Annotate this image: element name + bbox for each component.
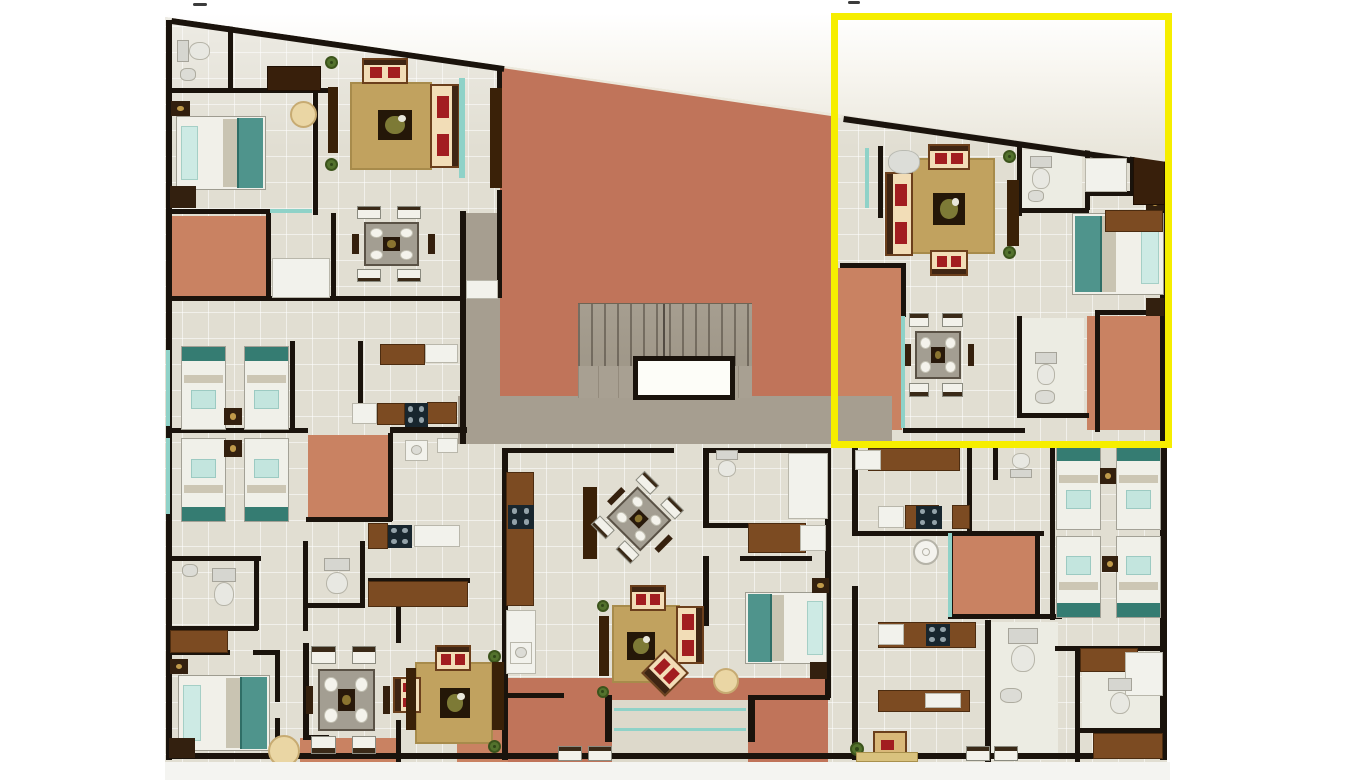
centerpiece bbox=[634, 514, 644, 524]
dining-chair bbox=[311, 646, 336, 664]
plate bbox=[324, 677, 338, 692]
burner bbox=[929, 637, 934, 642]
nightstand bbox=[224, 408, 242, 425]
wall-segment bbox=[303, 603, 365, 608]
sofa-cushion bbox=[636, 594, 646, 605]
kitchen-counter bbox=[170, 630, 228, 653]
toilet-bowl bbox=[1012, 453, 1031, 469]
side-table bbox=[856, 752, 918, 762]
potted-plant bbox=[597, 686, 609, 698]
bathroom-sink bbox=[180, 68, 196, 81]
terrace-left-apartment bbox=[170, 216, 266, 298]
twin-bed bbox=[181, 346, 226, 430]
wall-segment bbox=[985, 620, 991, 762]
potted-plant bbox=[325, 56, 338, 69]
bed-headboard bbox=[245, 507, 288, 521]
chair-back bbox=[358, 278, 380, 281]
burner bbox=[391, 528, 396, 533]
burner bbox=[524, 508, 530, 513]
double-bed bbox=[745, 592, 827, 664]
toilet-tank bbox=[324, 558, 350, 571]
burner bbox=[932, 509, 938, 514]
wall-segment bbox=[390, 427, 467, 433]
stone-corridor-band bbox=[458, 396, 892, 444]
toilet-bowl bbox=[1011, 645, 1035, 673]
mid-left-patio bbox=[308, 435, 388, 519]
wall-segment bbox=[460, 211, 466, 444]
kitchen-counter bbox=[506, 472, 534, 606]
coffee-table bbox=[440, 688, 470, 718]
plate bbox=[633, 528, 649, 544]
plant-center bbox=[493, 655, 497, 659]
kitchen-sink bbox=[405, 440, 428, 461]
toilet-bowl bbox=[214, 582, 234, 606]
twin-bed bbox=[1056, 536, 1101, 618]
chair-back bbox=[398, 207, 420, 210]
toilet bbox=[1106, 678, 1134, 716]
plate bbox=[370, 228, 383, 238]
burner bbox=[419, 417, 424, 422]
chair-back bbox=[967, 747, 989, 751]
chair-back bbox=[353, 748, 376, 753]
toilet-tank bbox=[212, 568, 237, 582]
plant-center bbox=[601, 604, 604, 607]
bed-pillow bbox=[807, 601, 823, 654]
white-appliance bbox=[925, 693, 961, 708]
media-console bbox=[328, 87, 338, 153]
kitchen-counter bbox=[368, 581, 468, 607]
sofa-cushion bbox=[388, 67, 401, 78]
white-appliance bbox=[466, 280, 498, 299]
glass-door bbox=[614, 708, 746, 711]
burner bbox=[920, 509, 926, 514]
knob bbox=[177, 106, 184, 111]
glass-door bbox=[459, 78, 465, 178]
glass-door bbox=[270, 209, 312, 213]
nightstand bbox=[1102, 556, 1118, 572]
bed-pillow bbox=[1066, 490, 1091, 510]
bed-fold bbox=[1119, 582, 1159, 590]
wood-block bbox=[169, 738, 195, 758]
potted-plant bbox=[597, 600, 609, 612]
dining-chair bbox=[352, 646, 377, 664]
dining-set bbox=[306, 646, 394, 754]
toilet bbox=[1008, 452, 1034, 478]
sofa-back bbox=[395, 679, 401, 711]
potted-plant bbox=[488, 740, 501, 753]
white-appliance bbox=[855, 450, 881, 470]
sofa-back bbox=[632, 587, 664, 592]
plate bbox=[400, 250, 413, 260]
sofa-cushion bbox=[370, 67, 383, 78]
sink-bowl bbox=[515, 647, 526, 658]
wall-segment bbox=[266, 213, 271, 301]
toilet bbox=[322, 558, 352, 596]
chair-back bbox=[358, 207, 380, 210]
burner bbox=[524, 519, 530, 524]
dining-bracket bbox=[352, 234, 359, 254]
dining-chair bbox=[397, 206, 421, 219]
toilet-tank bbox=[1008, 628, 1038, 644]
kitchen-counter bbox=[748, 523, 806, 553]
bed-pillow bbox=[181, 126, 199, 181]
toilet-tank bbox=[716, 450, 739, 460]
coffee-cup bbox=[398, 115, 406, 122]
coffee-cup bbox=[457, 693, 464, 700]
wall-segment bbox=[852, 586, 858, 690]
round-table bbox=[913, 539, 939, 565]
sofa-cushion bbox=[682, 640, 694, 655]
plate bbox=[614, 510, 630, 526]
wall-segment bbox=[275, 650, 280, 702]
floor-plan-screenshot bbox=[0, 0, 1350, 780]
plate bbox=[370, 250, 383, 260]
toilet-tank bbox=[1010, 469, 1033, 478]
toilet bbox=[1006, 628, 1040, 674]
nightstand bbox=[171, 101, 190, 116]
nightstand bbox=[170, 659, 188, 674]
white-appliance bbox=[414, 525, 460, 547]
bed-fold bbox=[1059, 582, 1099, 590]
bathroom-sink bbox=[182, 564, 198, 577]
round-chair bbox=[290, 101, 317, 128]
sofa-cushion bbox=[455, 654, 465, 665]
toilet-tank bbox=[1108, 678, 1133, 691]
wood-block bbox=[810, 662, 827, 679]
plate bbox=[630, 494, 646, 510]
chair-back bbox=[559, 747, 581, 751]
bed-fold bbox=[184, 375, 224, 383]
media-console bbox=[490, 88, 502, 188]
bed-fold bbox=[226, 678, 240, 748]
toilet-bowl bbox=[718, 460, 737, 477]
wall-segment bbox=[228, 24, 233, 93]
sofa-cushion bbox=[437, 96, 449, 118]
white-appliance bbox=[425, 344, 458, 363]
cropped-text-mark bbox=[193, 3, 207, 6]
burner bbox=[512, 519, 518, 524]
wall-segment bbox=[502, 448, 674, 453]
wall-segment bbox=[752, 695, 830, 700]
dining-bracket bbox=[306, 686, 313, 714]
knob bbox=[1107, 561, 1113, 567]
sofa-cushion bbox=[441, 654, 451, 665]
stove bbox=[916, 506, 942, 529]
table-center bbox=[629, 509, 649, 529]
dining-bracket bbox=[383, 686, 390, 714]
sofa bbox=[676, 606, 704, 664]
highlight-box bbox=[831, 13, 1172, 448]
table-center bbox=[383, 237, 399, 251]
dining-bracket bbox=[428, 234, 435, 254]
wall-segment bbox=[306, 517, 392, 522]
burner bbox=[408, 406, 413, 411]
glass-door bbox=[166, 438, 170, 514]
table-ring bbox=[922, 548, 931, 557]
cropped-text-mark bbox=[848, 1, 860, 4]
wall-segment bbox=[502, 693, 564, 698]
nightstand bbox=[1100, 468, 1116, 484]
bed-pillow bbox=[1066, 556, 1091, 575]
knob bbox=[1105, 473, 1111, 479]
white-appliance bbox=[352, 403, 377, 424]
bed-blanket bbox=[748, 594, 772, 661]
bottom-right-patio bbox=[953, 533, 1037, 618]
dining-table bbox=[318, 669, 374, 732]
toilet-bowl bbox=[1110, 692, 1130, 715]
chair-back bbox=[589, 747, 611, 751]
knob bbox=[176, 664, 182, 669]
wall-segment bbox=[748, 695, 755, 742]
bed-fold bbox=[247, 375, 287, 383]
plant-center bbox=[330, 163, 334, 167]
toilet bbox=[714, 450, 740, 478]
wall-segment bbox=[1035, 531, 1040, 619]
bed-fold bbox=[223, 119, 237, 187]
coffee-cup bbox=[643, 636, 650, 643]
bed-fold bbox=[1059, 475, 1099, 483]
twin-bed bbox=[1056, 446, 1101, 530]
white-appliance bbox=[272, 258, 330, 298]
kitchen-sink bbox=[510, 642, 532, 664]
wall-segment bbox=[605, 695, 612, 742]
burner bbox=[408, 417, 413, 422]
burner bbox=[419, 406, 424, 411]
plant-center bbox=[855, 747, 859, 751]
toilet-tank bbox=[177, 40, 189, 61]
bed-headboard bbox=[1117, 447, 1160, 461]
white-appliance bbox=[878, 506, 904, 528]
bed-headboard bbox=[1117, 603, 1160, 617]
sofa-back bbox=[452, 86, 458, 166]
wall-segment bbox=[358, 341, 363, 407]
plate bbox=[355, 708, 369, 723]
media-console bbox=[406, 668, 416, 730]
nightstand bbox=[812, 578, 829, 593]
wardrobe bbox=[267, 66, 321, 91]
wall-segment bbox=[993, 448, 998, 480]
white-appliance bbox=[788, 453, 828, 519]
wall-segment bbox=[303, 541, 308, 631]
burner bbox=[940, 637, 945, 642]
chair-back bbox=[995, 747, 1017, 751]
white-appliance bbox=[800, 525, 826, 551]
burner bbox=[402, 528, 407, 533]
dining-chair bbox=[357, 206, 381, 219]
dining-table bbox=[364, 222, 419, 266]
kitchen-counter bbox=[427, 402, 457, 424]
plate bbox=[324, 708, 338, 723]
dining-chair bbox=[311, 736, 336, 754]
bed-pillow bbox=[254, 390, 279, 410]
burner bbox=[391, 539, 396, 544]
burner bbox=[940, 627, 945, 632]
plate bbox=[355, 677, 369, 692]
wood-block bbox=[170, 186, 196, 208]
bed-fold bbox=[247, 485, 287, 493]
bottom-crop-band bbox=[165, 762, 1170, 780]
wall-segment bbox=[166, 88, 234, 93]
burner bbox=[932, 520, 938, 525]
plant-center bbox=[330, 61, 334, 65]
dining-set bbox=[352, 206, 438, 282]
centerpiece bbox=[387, 240, 395, 247]
sink-bowl bbox=[411, 445, 423, 456]
bed-pillow bbox=[1126, 490, 1151, 510]
plate bbox=[648, 513, 664, 529]
plant-center bbox=[601, 690, 604, 693]
stove bbox=[388, 525, 412, 548]
twin-bed bbox=[244, 346, 289, 430]
toilet-bowl bbox=[326, 572, 348, 595]
burner bbox=[512, 508, 518, 513]
bed-blanket bbox=[240, 677, 267, 748]
wall-segment bbox=[396, 603, 401, 643]
kitchen-counter bbox=[368, 523, 388, 549]
sofa bbox=[630, 585, 666, 611]
kitchen-counter bbox=[868, 448, 960, 471]
knob bbox=[230, 413, 236, 419]
sofa-cushion bbox=[437, 134, 449, 156]
wall-segment bbox=[360, 541, 365, 607]
dining-chair bbox=[588, 746, 612, 761]
wall-segment bbox=[740, 556, 812, 561]
wall-segment bbox=[950, 614, 1062, 619]
round-chair bbox=[713, 668, 739, 694]
coffee-table bbox=[378, 110, 412, 140]
dining-chair bbox=[397, 269, 421, 282]
dining-chair bbox=[352, 736, 377, 754]
twin-bed bbox=[1116, 536, 1161, 618]
sofa bbox=[430, 84, 460, 168]
white-appliance bbox=[437, 438, 458, 453]
dining-chair bbox=[357, 269, 381, 282]
media-console bbox=[599, 616, 609, 676]
knob bbox=[817, 583, 823, 588]
dining-chair bbox=[994, 746, 1018, 761]
burner bbox=[402, 539, 407, 544]
wall-segment bbox=[703, 448, 709, 528]
dining-chair bbox=[966, 746, 990, 761]
desk-cushion bbox=[881, 740, 894, 751]
burner bbox=[920, 520, 926, 525]
round-chair bbox=[268, 735, 300, 762]
wall-segment bbox=[290, 341, 295, 433]
double-bed bbox=[176, 116, 266, 190]
wall-segment bbox=[398, 753, 426, 758]
centerpiece bbox=[342, 695, 350, 706]
twin-bed bbox=[244, 438, 289, 522]
media-console bbox=[492, 662, 504, 730]
coffee-table bbox=[627, 632, 655, 660]
bed-blanket bbox=[237, 118, 263, 187]
sofa-back bbox=[437, 647, 469, 652]
toilet-bowl bbox=[189, 42, 209, 59]
sofa bbox=[362, 58, 408, 84]
wall-segment bbox=[166, 556, 261, 561]
plate bbox=[400, 228, 413, 238]
bed-fold bbox=[184, 485, 224, 493]
bed-pillow bbox=[1126, 556, 1151, 575]
bed-pillow bbox=[191, 390, 216, 410]
wall-segment bbox=[254, 556, 259, 630]
potted-plant bbox=[325, 158, 338, 171]
kitchen-counter bbox=[377, 403, 405, 425]
wall-segment bbox=[166, 209, 270, 214]
knob bbox=[230, 445, 236, 451]
nightstand bbox=[224, 440, 242, 457]
toilet bbox=[177, 39, 211, 63]
bed-pillow bbox=[191, 459, 216, 479]
burner bbox=[929, 627, 934, 632]
stove bbox=[405, 403, 428, 427]
sofa-back bbox=[364, 60, 406, 65]
glass-door bbox=[614, 728, 746, 731]
toilet bbox=[210, 568, 238, 608]
bed-fold bbox=[1119, 475, 1159, 483]
kitchen-counter bbox=[380, 344, 425, 365]
bed-headboard bbox=[245, 347, 288, 361]
bed-fold bbox=[772, 595, 785, 661]
bed-pillow bbox=[254, 459, 279, 479]
kitchen-counter bbox=[952, 505, 970, 529]
chair-back bbox=[398, 278, 420, 281]
bed-headboard bbox=[1057, 447, 1100, 461]
chair-back bbox=[312, 748, 335, 753]
elevator-shaft bbox=[633, 356, 735, 400]
bed-pillow bbox=[183, 685, 201, 741]
glass-door bbox=[948, 533, 952, 617]
stove bbox=[508, 505, 534, 529]
table-center bbox=[338, 689, 355, 710]
bed-headboard bbox=[182, 347, 225, 361]
sofa-cushion bbox=[682, 614, 694, 629]
sofa-cushion bbox=[650, 594, 660, 605]
wall-segment bbox=[388, 433, 393, 521]
twin-bed bbox=[1116, 446, 1161, 530]
chair-back bbox=[353, 647, 376, 652]
plant-center bbox=[493, 745, 497, 749]
bathroom-sink bbox=[1000, 688, 1022, 703]
sofa-back bbox=[696, 608, 702, 662]
dining-chair bbox=[558, 746, 582, 761]
white-appliance bbox=[878, 624, 904, 645]
kitchen-counter bbox=[1093, 733, 1163, 759]
wall-segment bbox=[331, 213, 336, 301]
twin-bed bbox=[181, 438, 226, 522]
sofa bbox=[435, 645, 471, 671]
glass-door bbox=[166, 350, 170, 426]
wall-segment bbox=[1050, 448, 1055, 620]
stove bbox=[926, 624, 950, 646]
chair-back bbox=[312, 647, 335, 652]
bed-headboard bbox=[182, 507, 225, 521]
bed-headboard bbox=[1057, 603, 1100, 617]
